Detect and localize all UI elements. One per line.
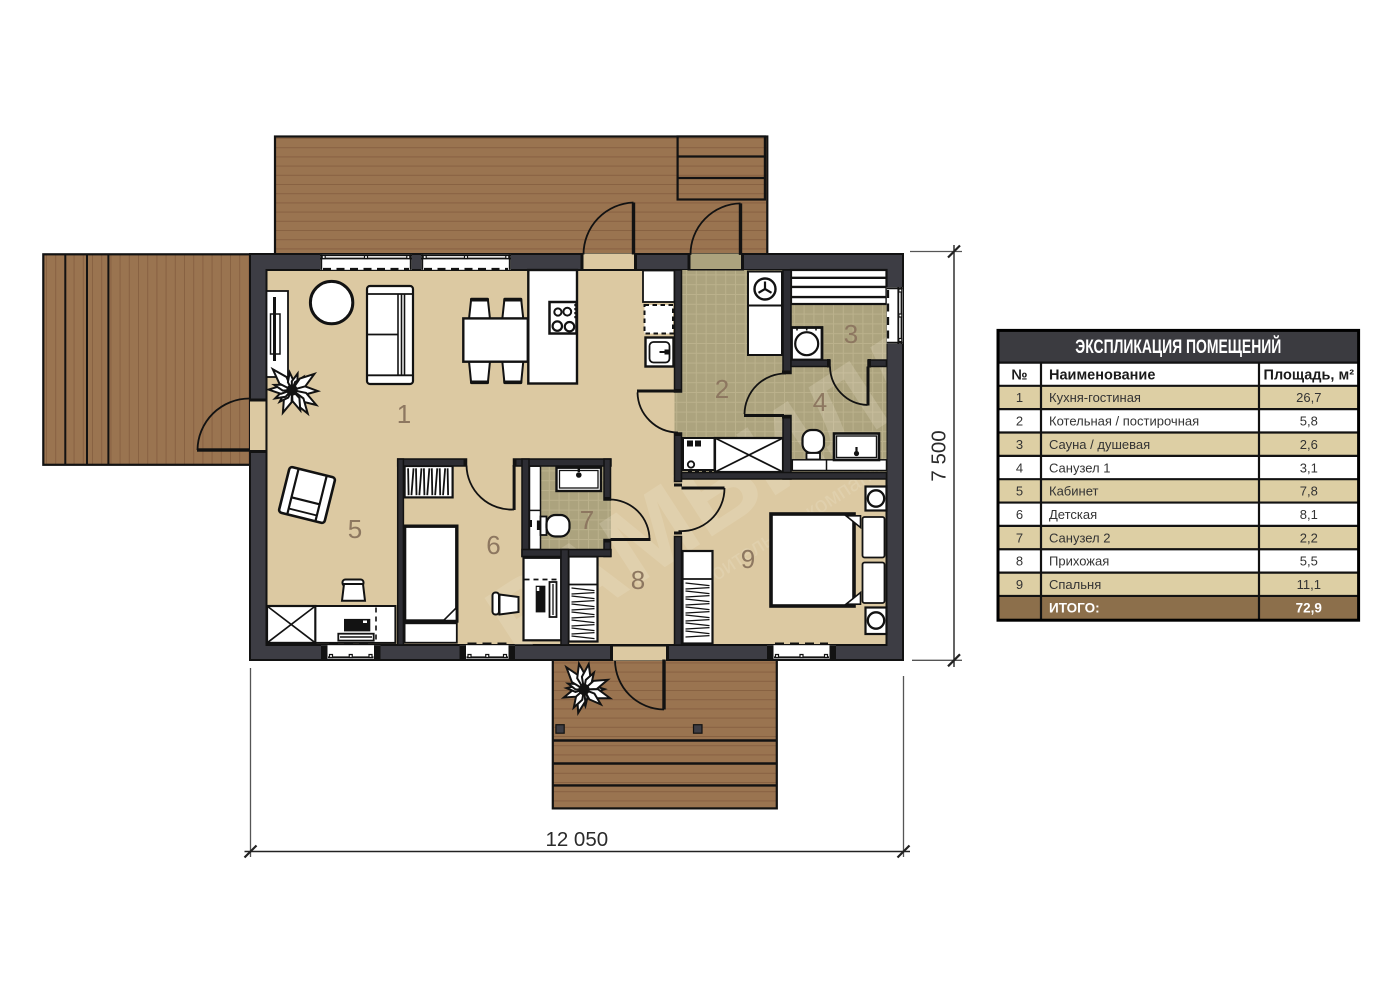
svg-text:2,2: 2,2 xyxy=(1300,530,1318,545)
svg-text:5,5: 5,5 xyxy=(1300,554,1318,569)
svg-text:72,9: 72,9 xyxy=(1296,601,1322,616)
svg-text:3,1: 3,1 xyxy=(1300,460,1318,475)
svg-text:6: 6 xyxy=(486,530,500,560)
svg-text:8: 8 xyxy=(631,565,645,595)
svg-text:Сауна / душевая: Сауна / душевая xyxy=(1049,437,1150,452)
svg-text:Площадь, м²: Площадь, м² xyxy=(1264,367,1355,383)
svg-text:1: 1 xyxy=(397,399,411,429)
svg-text:7: 7 xyxy=(1016,530,1023,545)
svg-text:Санузел 1: Санузел 1 xyxy=(1049,460,1110,475)
svg-text:5: 5 xyxy=(1016,484,1023,499)
svg-text:12 050: 12 050 xyxy=(545,828,608,851)
svg-text:№: № xyxy=(1011,367,1027,383)
svg-text:Детская: Детская xyxy=(1049,507,1097,522)
svg-text:7: 7 xyxy=(580,505,594,535)
svg-text:ИТОГО:: ИТОГО: xyxy=(1049,601,1100,616)
svg-text:5,8: 5,8 xyxy=(1300,414,1318,429)
svg-text:Санузел 2: Санузел 2 xyxy=(1049,530,1110,545)
svg-text:26,7: 26,7 xyxy=(1296,390,1321,405)
svg-text:Кухня-гостиная: Кухня-гостиная xyxy=(1049,390,1141,405)
svg-text:2: 2 xyxy=(1016,414,1023,429)
svg-text:4: 4 xyxy=(813,387,827,417)
svg-text:3: 3 xyxy=(1016,437,1023,452)
svg-text:ЭКСПЛИКАЦИЯ ПОМЕЩЕНИЙ: ЭКСПЛИКАЦИЯ ПОМЕЩЕНИЙ xyxy=(1075,334,1281,358)
svg-text:Спальня: Спальня xyxy=(1049,577,1101,592)
svg-text:Кабинет: Кабинет xyxy=(1049,484,1098,499)
svg-text:1: 1 xyxy=(1016,390,1023,405)
svg-text:9: 9 xyxy=(741,544,755,574)
svg-text:11,1: 11,1 xyxy=(1297,577,1321,592)
svg-text:9: 9 xyxy=(1016,577,1023,592)
svg-text:4: 4 xyxy=(1016,460,1023,475)
svg-text:Наименование: Наименование xyxy=(1049,367,1155,383)
svg-text:8,1: 8,1 xyxy=(1300,507,1318,522)
svg-text:6: 6 xyxy=(1016,507,1023,522)
svg-text:Котельная / постирочная: Котельная / постирочная xyxy=(1049,414,1199,429)
svg-text:8: 8 xyxy=(1016,554,1023,569)
svg-text:7,8: 7,8 xyxy=(1300,484,1318,499)
svg-text:3: 3 xyxy=(844,319,858,349)
svg-text:5: 5 xyxy=(348,514,362,544)
svg-text:2,6: 2,6 xyxy=(1300,437,1318,452)
svg-text:Прихожая: Прихожая xyxy=(1049,554,1109,569)
svg-text:7 500: 7 500 xyxy=(928,430,951,481)
svg-text:2: 2 xyxy=(715,374,729,404)
